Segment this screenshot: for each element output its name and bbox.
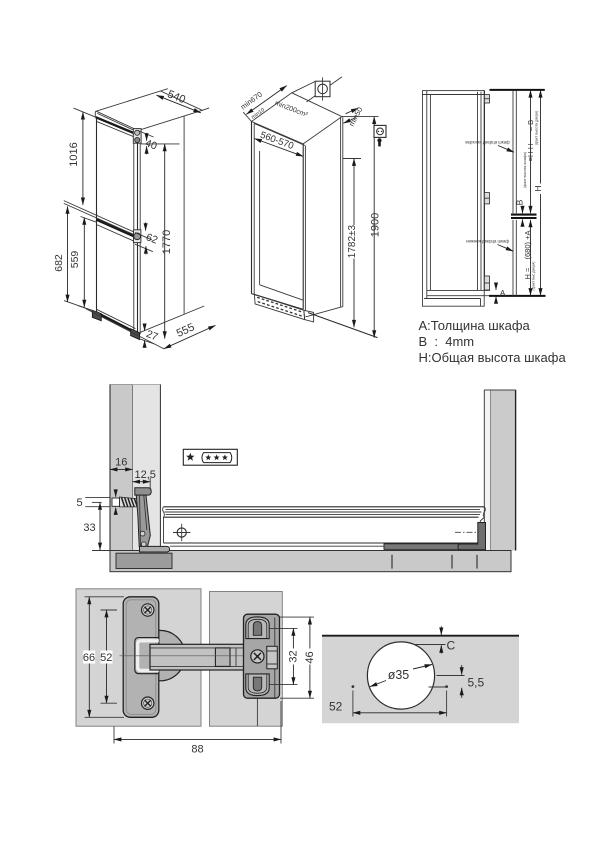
svg-text:(факт высота шкафа): (факт высота шкафа) [523, 152, 527, 188]
svg-text:=Н-Н: =Н-Н [526, 144, 535, 162]
svg-text:52: 52 [100, 652, 112, 664]
svg-text:66: 66 [83, 652, 95, 664]
svg-text:5,5: 5,5 [468, 676, 485, 690]
svg-text:16: 16 [115, 456, 127, 468]
svg-text:B : 4mm: B : 4mm [419, 334, 475, 349]
svg-text:52: 52 [329, 700, 343, 714]
svg-text:1900: 1900 [369, 213, 381, 237]
svg-text:682: 682 [53, 254, 65, 272]
svg-text:88: 88 [191, 744, 203, 756]
svg-text:Н: Н [533, 186, 543, 192]
svg-text:12,5: 12,5 [135, 469, 156, 481]
svg-text:А:Толщина шкафа: А:Толщина шкафа [419, 318, 531, 333]
svg-text:1016: 1016 [68, 142, 80, 166]
svg-text:46: 46 [304, 651, 316, 663]
svg-text:B: B [514, 199, 524, 205]
svg-text:min200cm²: min200cm² [274, 100, 309, 119]
svg-text:555: 555 [175, 321, 197, 340]
svg-text:нижняя дверца шкаф: нижняя дверца шкаф [466, 238, 509, 243]
svg-text:(факт выс двери): (факт выс двери) [531, 262, 535, 291]
svg-text:62: 62 [144, 231, 159, 246]
svg-text:559: 559 [69, 251, 81, 269]
svg-text:40: 40 [143, 137, 158, 152]
svg-text:33: 33 [83, 522, 95, 534]
svg-text:Н:Общая высота шкафа: Н:Общая высота шкафа [419, 350, 567, 365]
svg-text:1770: 1770 [161, 230, 173, 254]
svg-text:32: 32 [288, 650, 300, 662]
svg-text:540: 540 [166, 88, 188, 106]
svg-text:– B: – B [526, 120, 535, 131]
svg-text:A: A [500, 288, 506, 298]
svg-text:верхняя дверца шкаф: верхняя дверца шкаф [465, 139, 510, 144]
svg-text:ø35: ø35 [388, 668, 410, 682]
svg-text:C: C [447, 639, 456, 653]
svg-text:(680) +A: (680) +A [523, 231, 532, 260]
svg-text:1782±3: 1782±3 [347, 225, 358, 259]
svg-text:5: 5 [77, 497, 83, 509]
svg-text:(факт высота двери): (факт высота двери) [535, 111, 539, 145]
